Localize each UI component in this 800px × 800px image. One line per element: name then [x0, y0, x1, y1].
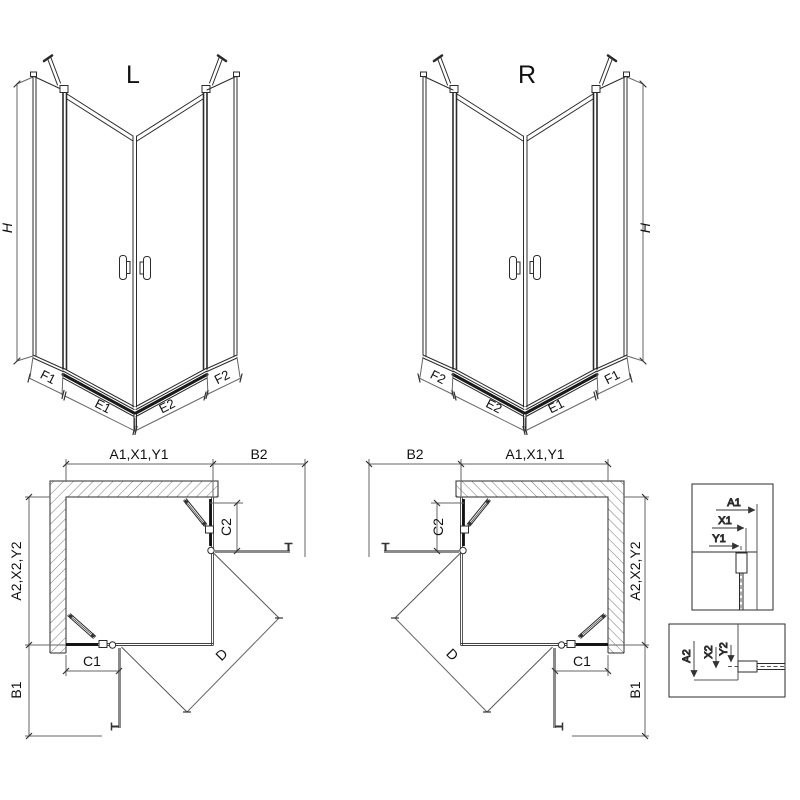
detail-label-y2: Y2: [718, 642, 730, 655]
dim-label-height-r: H: [637, 222, 653, 233]
dim-label-d-l: D: [212, 645, 230, 663]
shower-enclosure-technical-drawing: L H F1 E1 E2 F2 R H F2 E2 E1 F1: [0, 0, 800, 800]
dim-label-b1-l: B1: [8, 681, 24, 698]
dim-label-a1x1y1-l: A1,X1,Y1: [109, 446, 168, 462]
detail-label-x1: X1: [718, 515, 731, 527]
iso-l-title: L: [126, 61, 140, 89]
detail-label-a2: A2: [681, 649, 693, 662]
dim-label-a2x2y2-l: A2,X2,Y2: [8, 541, 24, 600]
detail-label-x2: X2: [703, 645, 715, 658]
dim-label-a1x1y1-r: A1,X1,Y1: [505, 446, 564, 462]
iso-r-title: R: [518, 61, 536, 89]
detail-label-a1: A1: [727, 497, 740, 509]
dim-label-b2-l: B2: [250, 446, 267, 462]
dim-label-c1-l: C1: [83, 653, 101, 669]
dim-label-e1-r: E1: [545, 396, 566, 417]
dim-label-height-l: H: [0, 222, 15, 233]
detail-box-width: A1 X1 Y1: [692, 484, 773, 610]
dim-label-c2-r: C2: [430, 518, 446, 536]
plan-view-geometry-mirrored: [366, 459, 649, 739]
dim-label-b2-r: B2: [406, 446, 423, 462]
detail-box-depth: A2 X2 Y2: [669, 624, 785, 697]
dim-label-c2-l: C2: [218, 518, 234, 536]
iso-view-l-labels: L H F1 E1 E2 F2: [0, 61, 232, 416]
detail-label-y1: Y1: [712, 533, 725, 545]
dim-label-e2-r: E2: [484, 396, 505, 417]
dim-label-d-r: D: [443, 645, 461, 663]
iso-view-r-labels: R H F2 E2 E1 F1: [428, 61, 653, 416]
dim-label-c1-r: C1: [573, 653, 591, 669]
dim-label-a2x2y2-r: A2,X2,Y2: [627, 541, 643, 600]
dim-label-b1-r: B1: [627, 681, 643, 698]
plan-view-geometry: [25, 459, 308, 739]
